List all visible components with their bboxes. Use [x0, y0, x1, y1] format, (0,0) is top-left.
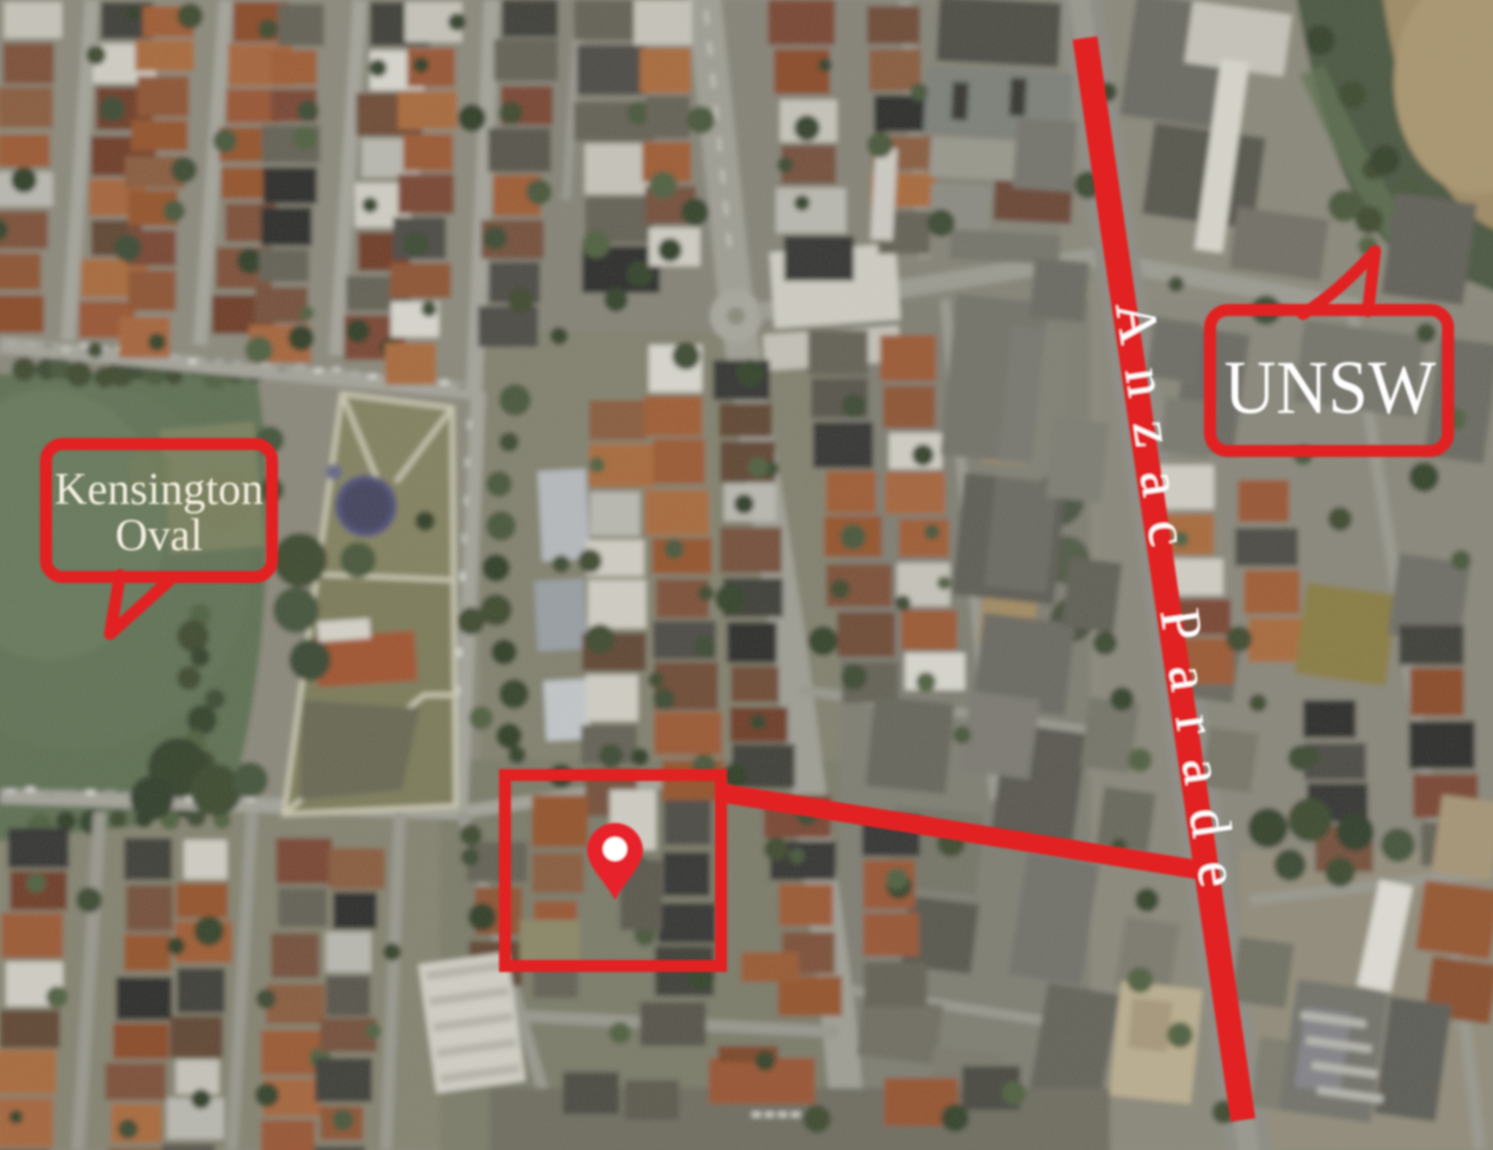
svg-text:Kensington: Kensington: [55, 464, 264, 514]
svg-text:UNSW: UNSW: [1224, 346, 1436, 430]
svg-text:Oval: Oval: [115, 510, 202, 560]
